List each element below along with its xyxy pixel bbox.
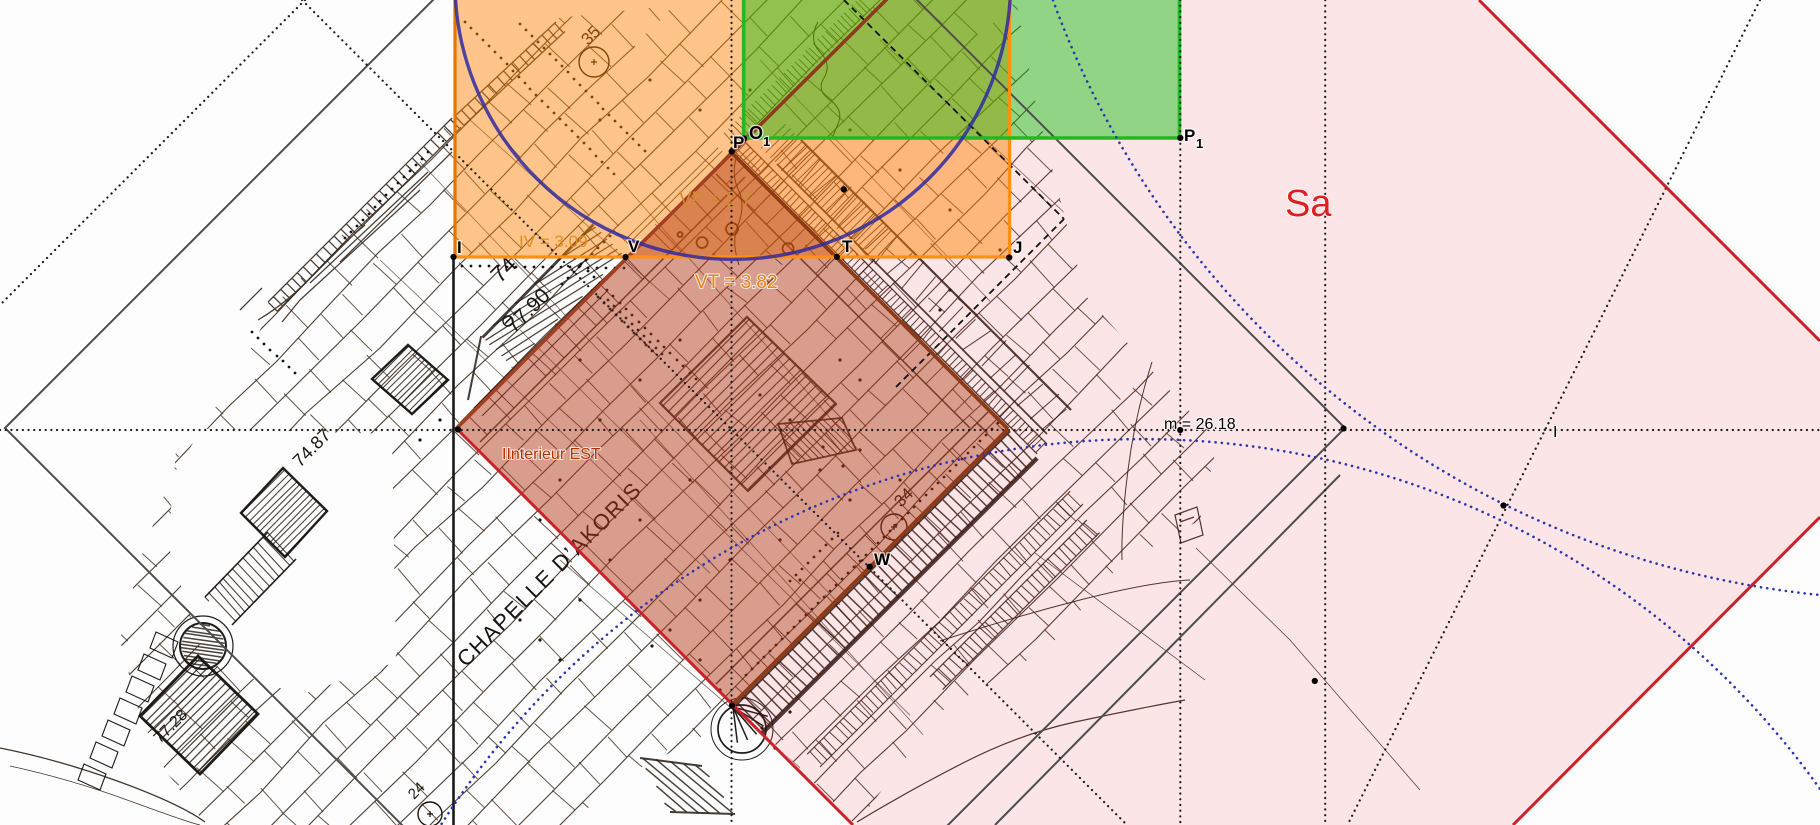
svg-text:1: 1	[763, 134, 770, 149]
svg-text:W: W	[874, 550, 891, 569]
svg-text:IV = 3.09: IV = 3.09	[519, 232, 588, 251]
svg-text:1: 1	[1196, 136, 1203, 151]
svg-text:m = 26.18: m = 26.18	[1164, 416, 1236, 433]
svg-text:VT = 3.82: VT = 3.82	[695, 272, 778, 293]
svg-text:Sa: Sa	[1285, 183, 1332, 225]
svg-text:P: P	[733, 133, 744, 152]
svg-text:V: V	[628, 237, 640, 256]
svg-text:T: T	[842, 237, 853, 256]
svg-text:VP = 2.7: VP = 2.7	[679, 189, 752, 210]
svg-text:I: I	[1553, 424, 1557, 441]
svg-text:IInterieur EST: IInterieur EST	[502, 446, 601, 463]
svg-text:J: J	[1013, 238, 1022, 257]
svg-text:P: P	[1184, 126, 1195, 145]
svg-text:O: O	[749, 123, 763, 143]
svg-text:I: I	[457, 238, 462, 257]
